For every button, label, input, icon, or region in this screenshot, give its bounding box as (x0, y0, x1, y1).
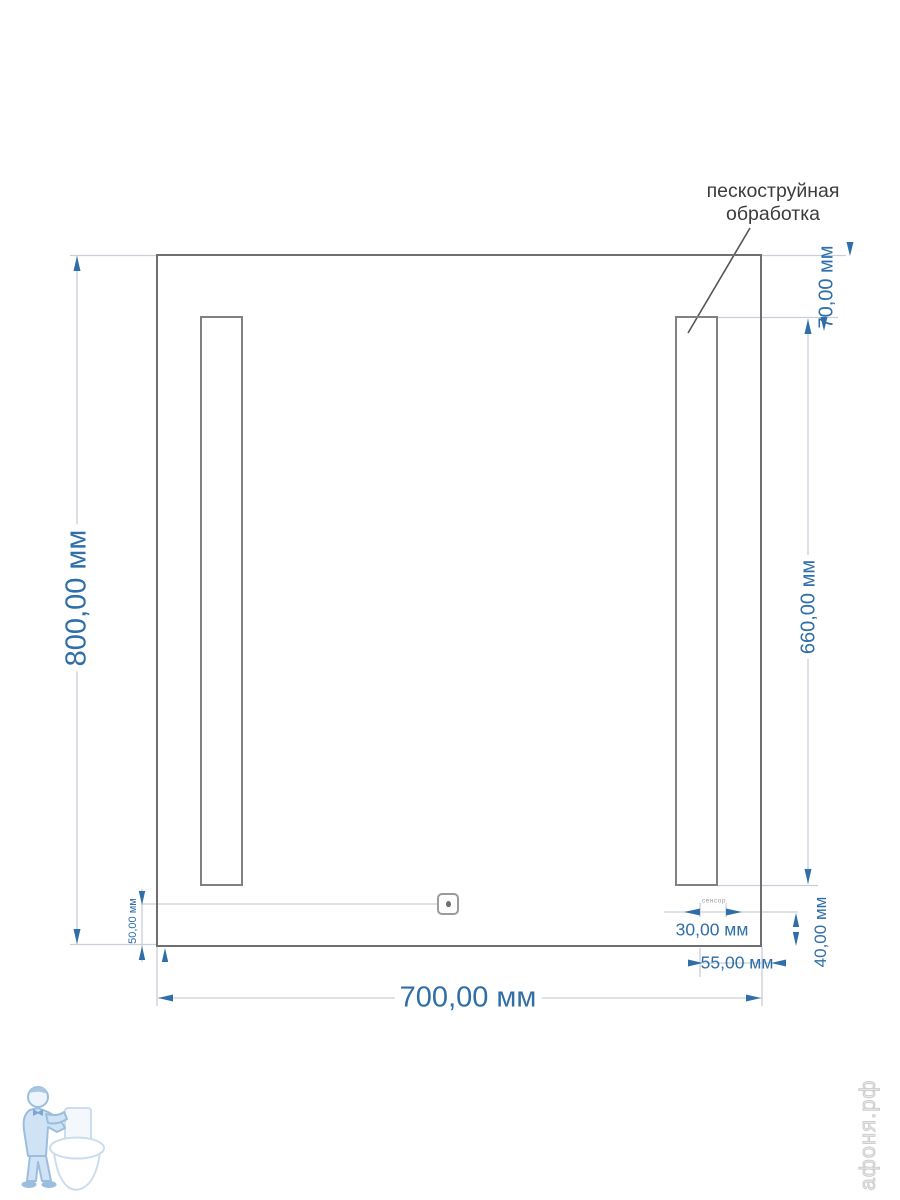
dim-label-mirror-width: 700,00 мм (395, 982, 542, 1015)
annotation-label: пескоструйная обработка (668, 180, 878, 226)
technical-drawing-canvas: пескоструйная обработка 800,00 мм 700,00… (0, 0, 900, 1200)
dim-label-strip-height: 660,00 мм (798, 555, 821, 659)
dim-label-sensor-bottom-offset: 50,00 мм (127, 898, 139, 944)
dim-label-strip-top-offset: 70,00 мм (816, 245, 839, 328)
right-light-strip (675, 316, 718, 886)
dim-label-40: 40,00 мм (811, 897, 831, 968)
dim-label-55: 55,00 мм (701, 953, 774, 974)
plumber-with-toilet-icon (8, 1082, 143, 1200)
annotation-line-2: обработка (668, 203, 878, 226)
watermark-site-text: афоня.рф (855, 1079, 881, 1190)
touch-sensor-button (437, 893, 459, 915)
touch-sensor-dot-icon (446, 901, 451, 907)
left-light-strip (200, 316, 243, 886)
annotation-line-1: пескоструйная (668, 180, 878, 203)
tiny-sensor-label: сенсор (702, 898, 726, 905)
mirror-outline (156, 254, 762, 947)
dim-label-30: 30,00 мм (676, 920, 749, 941)
dim-label-mirror-height: 800,00 мм (61, 525, 94, 672)
